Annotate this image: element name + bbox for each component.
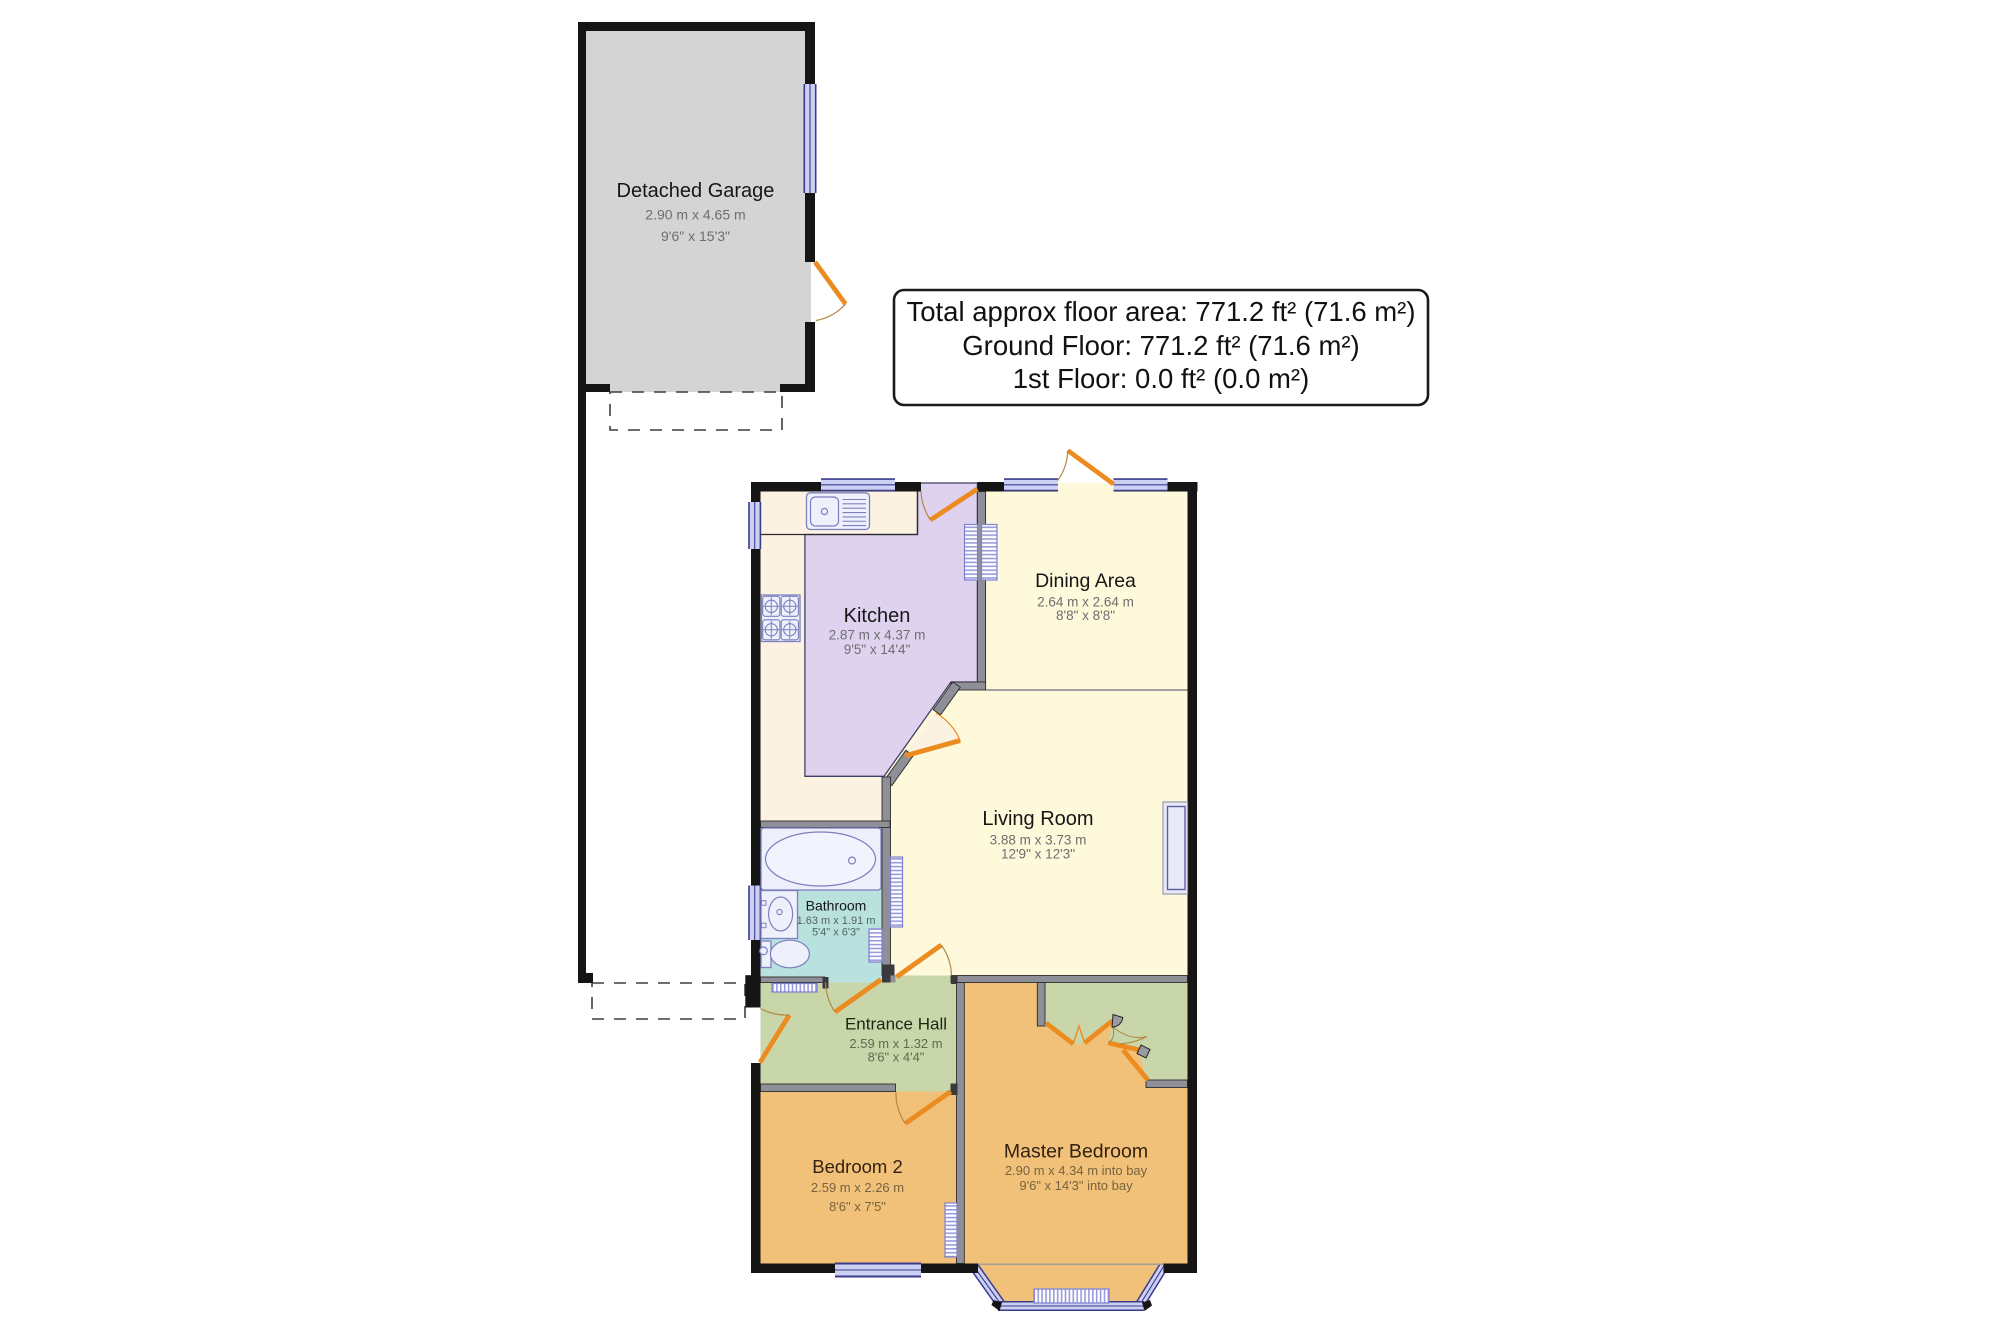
svg-text:Total approx floor area: 771.2: Total approx floor area: 771.2 ft² (71.6… — [907, 296, 1416, 327]
svg-text:1.63 m x 1.91 m: 1.63 m x 1.91 m — [797, 915, 876, 927]
svg-text:8'6" x 4'4": 8'6" x 4'4" — [868, 1050, 925, 1065]
svg-text:Detached Garage: Detached Garage — [617, 180, 775, 202]
svg-text:2.90 m x 4.65 m: 2.90 m x 4.65 m — [645, 207, 745, 223]
svg-text:Bedroom 2: Bedroom 2 — [812, 1156, 903, 1177]
svg-text:8'8" x 8'8": 8'8" x 8'8" — [1056, 608, 1115, 623]
svg-text:Living Room: Living Room — [982, 808, 1093, 830]
svg-text:1st Floor: 0.0 ft² (0.0 m²): 1st Floor: 0.0 ft² (0.0 m²) — [1013, 363, 1309, 394]
svg-text:Entrance Hall: Entrance Hall — [845, 1014, 947, 1033]
svg-text:2.59 m x 2.26 m: 2.59 m x 2.26 m — [811, 1180, 904, 1195]
svg-text:2.90 m x 4.34 m into bay: 2.90 m x 4.34 m into bay — [1005, 1163, 1148, 1178]
svg-text:12'9" x 12'3": 12'9" x 12'3" — [1001, 847, 1075, 862]
svg-text:9'6" x 15'3": 9'6" x 15'3" — [661, 228, 730, 244]
svg-text:Kitchen: Kitchen — [844, 605, 911, 627]
svg-text:Master Bedroom: Master Bedroom — [1004, 1141, 1148, 1163]
svg-text:9'6" x 14'3" into bay: 9'6" x 14'3" into bay — [1019, 1178, 1133, 1193]
svg-text:9'5" x 14'4": 9'5" x 14'4" — [844, 642, 911, 657]
svg-text:Ground Floor: 771.2 ft² (71.6: Ground Floor: 771.2 ft² (71.6 m²) — [962, 330, 1359, 361]
svg-text:Dining Area: Dining Area — [1035, 570, 1136, 592]
svg-text:2.87 m x 4.37 m: 2.87 m x 4.37 m — [829, 628, 926, 643]
svg-text:8'6" x 7'5": 8'6" x 7'5" — [829, 1199, 886, 1214]
svg-text:5'4" x 6'3": 5'4" x 6'3" — [812, 926, 860, 938]
svg-text:Bathroom: Bathroom — [806, 897, 867, 913]
svg-text:3.88 m x 3.73 m: 3.88 m x 3.73 m — [990, 833, 1087, 848]
